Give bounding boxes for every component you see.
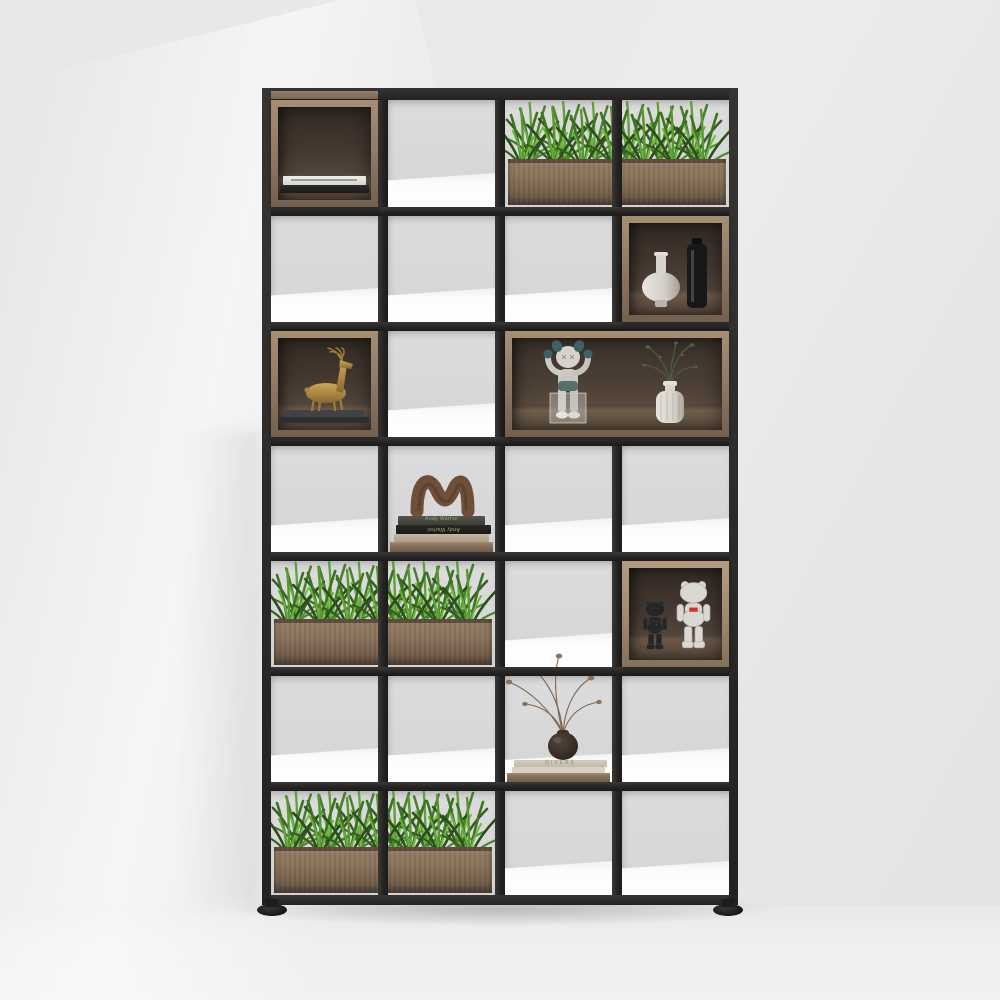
black-book [280,185,369,193]
wood-box-interior [278,338,371,430]
shelf-cell-open-r1c2 [388,100,495,207]
andy-warhol-book-black: Andy Warhol [396,525,491,534]
dark-book-top [284,410,364,417]
frame-left-post [262,88,271,905]
white-shelf-panel [388,286,495,322]
wood-box-r2c4 [622,216,729,322]
magazine-bottom [512,767,605,773]
white-shelf-panel [388,171,495,207]
wood-box-r3c1 [271,331,378,437]
shelf-cell-open-r7c3 [505,791,612,895]
white-shelf-panel [622,859,729,895]
vertical-rail-3 [612,100,622,895]
shelf-cell-open-r4c4 [622,446,729,552]
shelf-cell-open-r4c1 [271,446,378,552]
dried-branch-vase [495,648,615,760]
display-cell-r4c2: Andy Warhol Andy Warhol [388,446,495,552]
horizontal-rail-5 [271,667,729,676]
white-shelf-panel [271,516,378,552]
white-shelf-panel [505,859,612,895]
horizontal-rail-3 [271,437,729,446]
wood-box-interior [629,568,722,660]
shelf-cell-open-r3c2 [388,331,495,437]
white-shelf-panel [505,286,612,322]
white-shelf-panel [271,746,378,782]
wood-box-top-face [271,91,378,99]
book-spine-marks [291,179,357,181]
wood-wave-sculpture [405,450,479,518]
right-foot [713,904,743,916]
shelving-unit: Andy Warhol Andy Warhol [262,88,738,905]
gold-deer-figurine [286,347,364,411]
white-gourd-vase [639,252,683,308]
frame-right-post [729,88,738,905]
magazine-spine-text: RIVERS [514,760,607,767]
white-shelf-panel [388,746,495,782]
wood-box-r1c1 [271,100,378,207]
wood-box-interior [512,338,722,430]
dark-book-bottom [280,417,369,423]
product-render-scene: Andy Warhol Andy Warhol [0,0,1000,1000]
left-foot [257,904,287,916]
display-cell-r6c3: RIVERS [505,676,612,782]
shelf-cell-open-r2c1 [271,216,378,322]
acrylic-block [550,393,586,423]
wood-box-wide-r3 [505,331,729,437]
white-shelf-panel [271,286,378,322]
cream-book [394,534,489,542]
shelf-cell-open-r2c2 [388,216,495,322]
magazine-rivers: RIVERS [514,760,607,767]
red-chest-badge [689,608,697,612]
horizontal-rail-2 [271,322,729,331]
horizontal-rail-6 [271,782,729,791]
shelf-cast-shadow [180,430,262,908]
shelf-cell-open-r2c3 [505,216,612,322]
bear-figure-black [641,599,669,653]
wood-display-board [507,773,610,782]
wood-box-r5c4 [622,561,729,667]
vertical-rail-2 [495,100,505,895]
bear-figure-white [675,579,712,653]
horizontal-rail-1 [271,207,729,216]
book-spine-text: Andy Warhol [396,525,491,532]
white-shelf-panel [388,401,495,437]
shelf-cell-open-r6c2 [388,676,495,782]
kaws-companion-figure [536,339,600,425]
horizontal-rail-4 [271,552,729,561]
white-shelf-panel [622,746,729,782]
white-book [283,176,366,185]
frame-bottom-bar [262,895,738,905]
shelf-cell-open-r7c4 [622,791,729,895]
wood-display-board [390,542,493,552]
white-ribbed-vase-with-branches [630,339,710,425]
vertical-rail-1 [378,100,388,895]
shelf-cell-open-r6c4 [622,676,729,782]
white-shelf-panel [622,516,729,552]
shelf-cell-open-r4c3 [505,446,612,552]
shelf-cell-open-r6c1 [271,676,378,782]
black-cylinder-vase [684,238,710,308]
wood-box-interior [278,107,371,200]
white-shelf-panel [505,516,612,552]
wood-box-interior [629,223,722,315]
